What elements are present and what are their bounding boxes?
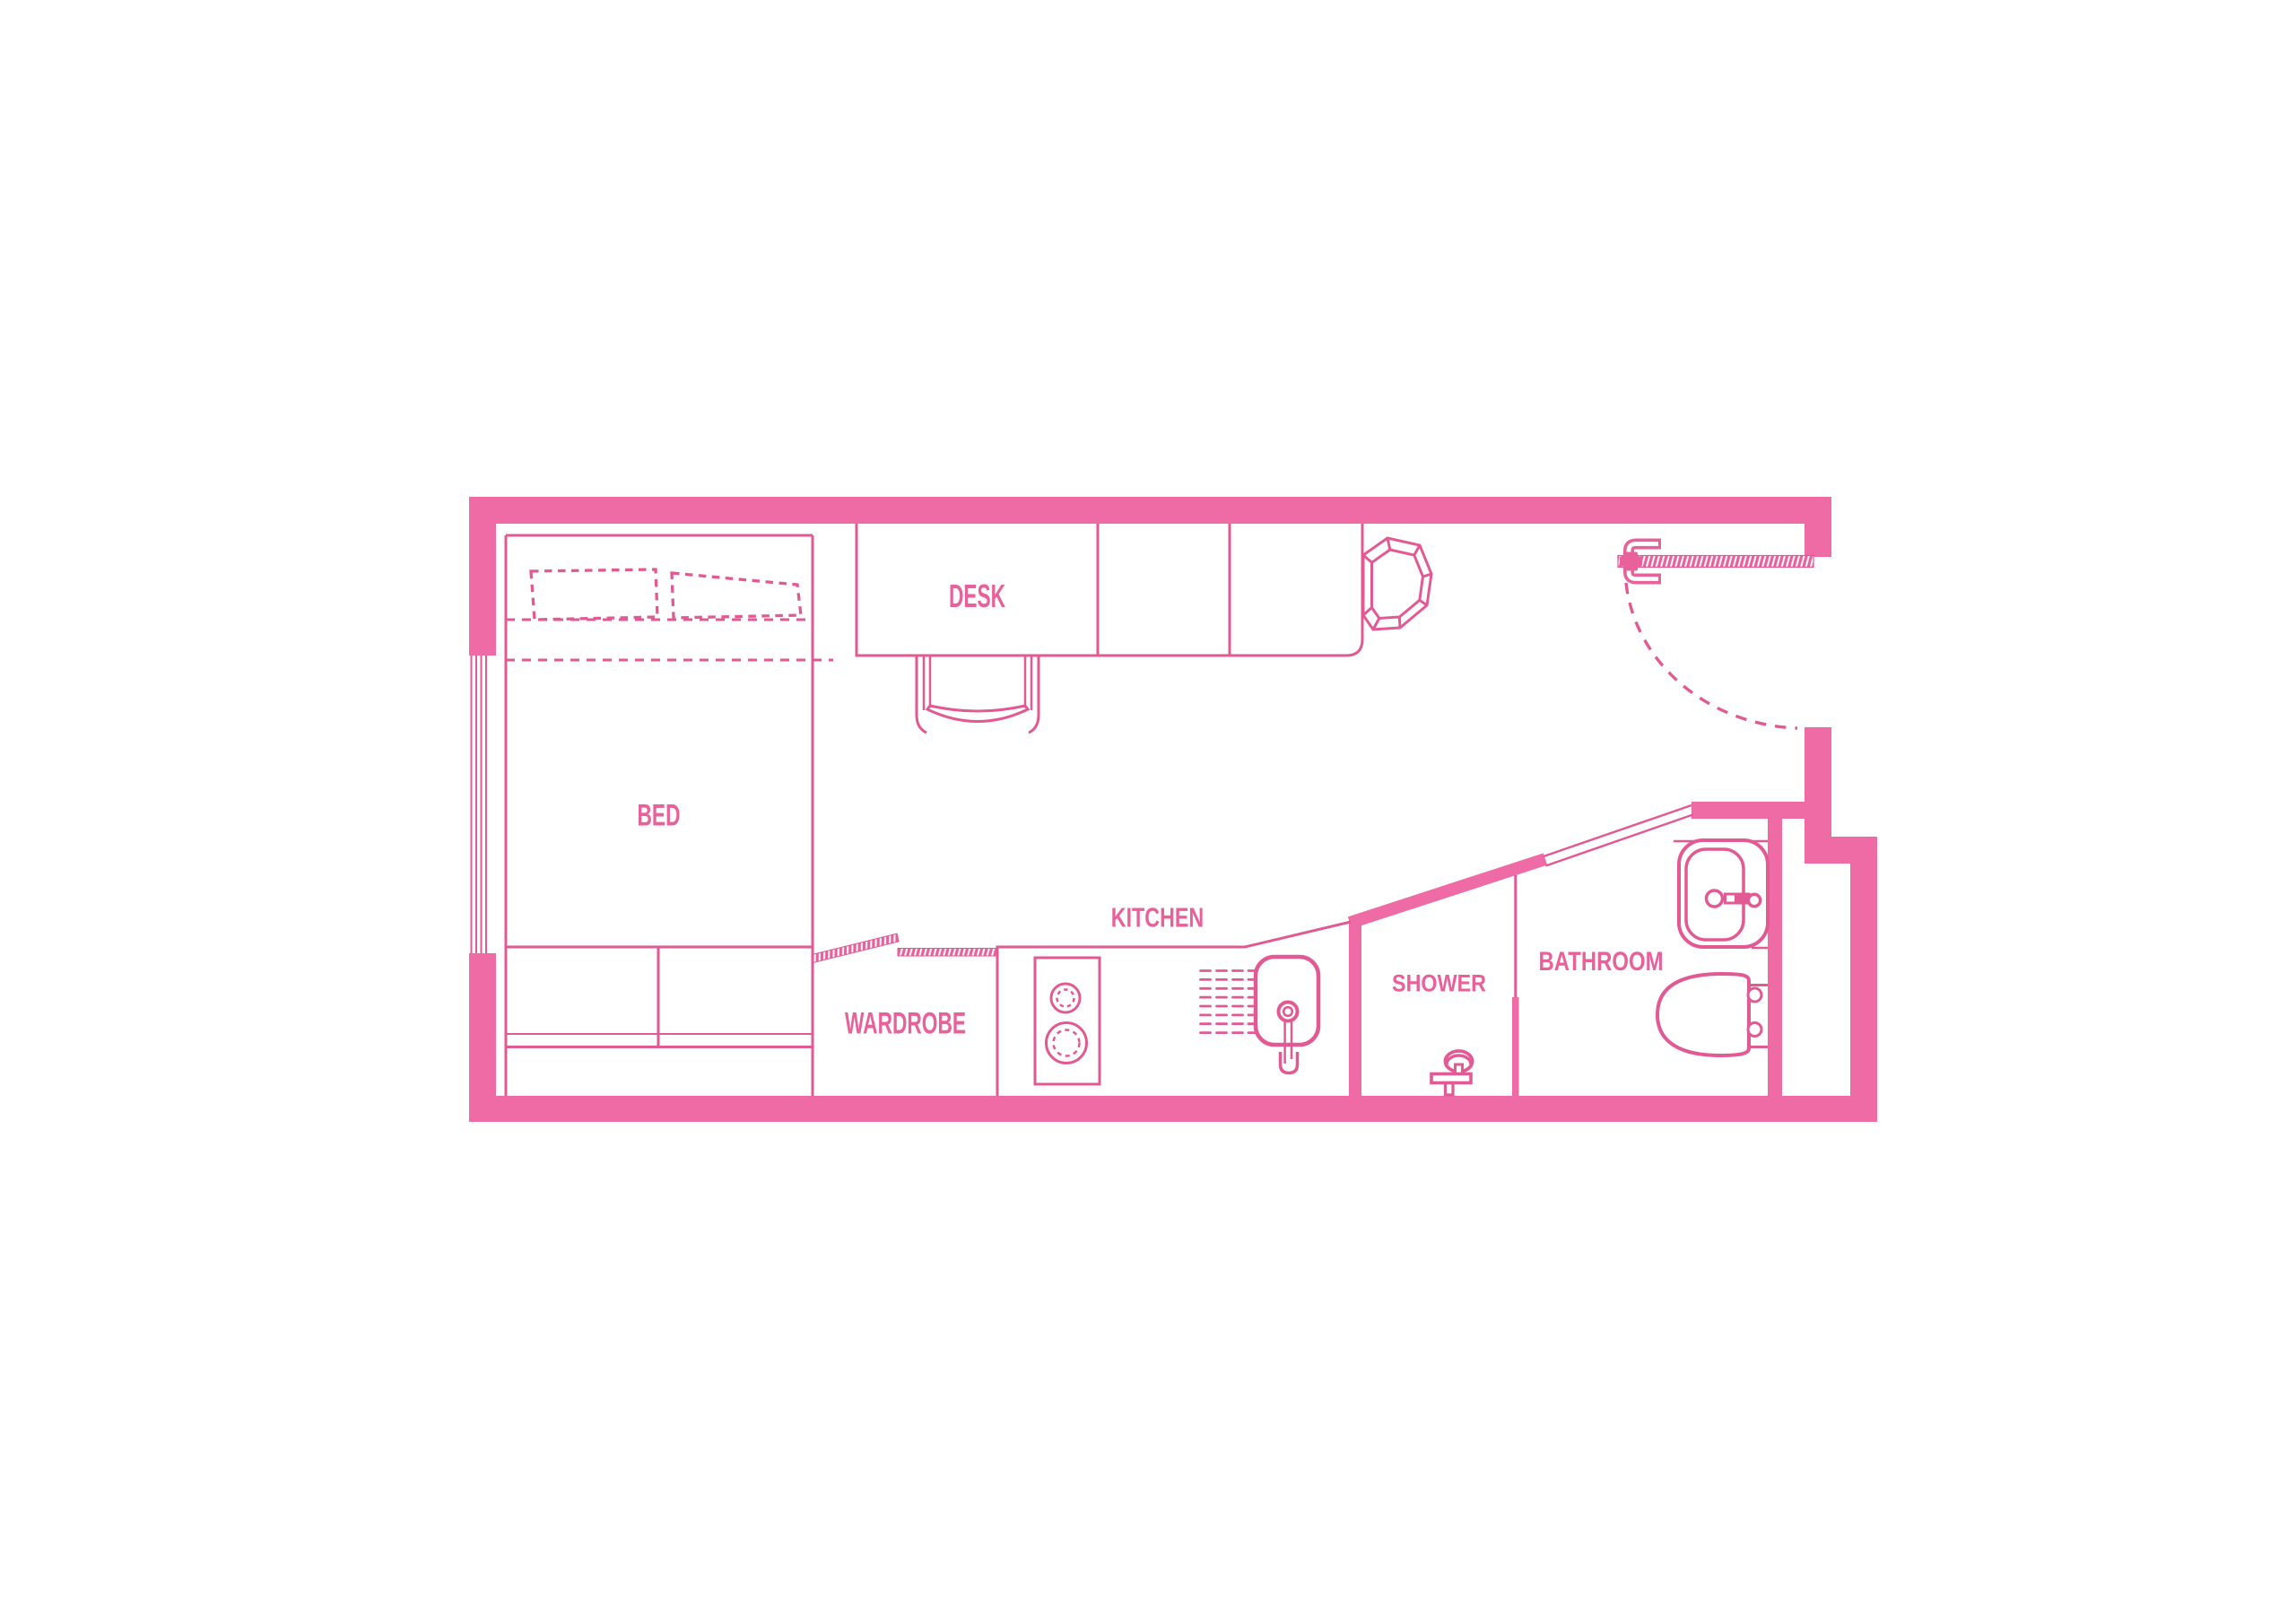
svg-text:BATHROOM: BATHROOM: [1539, 947, 1664, 977]
svg-text:SHOWER: SHOWER: [1392, 970, 1486, 997]
svg-text:BED: BED: [638, 799, 681, 833]
svg-text:DESK: DESK: [949, 578, 1005, 614]
svg-text:KITCHEN: KITCHEN: [1111, 902, 1205, 934]
svg-text:WARDROBE: WARDROBE: [845, 1007, 966, 1041]
